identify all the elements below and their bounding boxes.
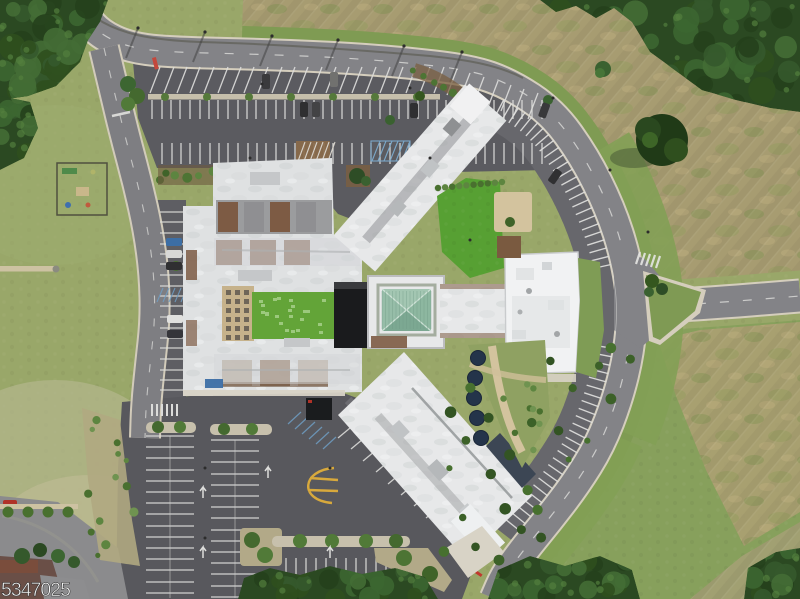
svg-text:5347025: 5347025 bbox=[1, 579, 71, 599]
